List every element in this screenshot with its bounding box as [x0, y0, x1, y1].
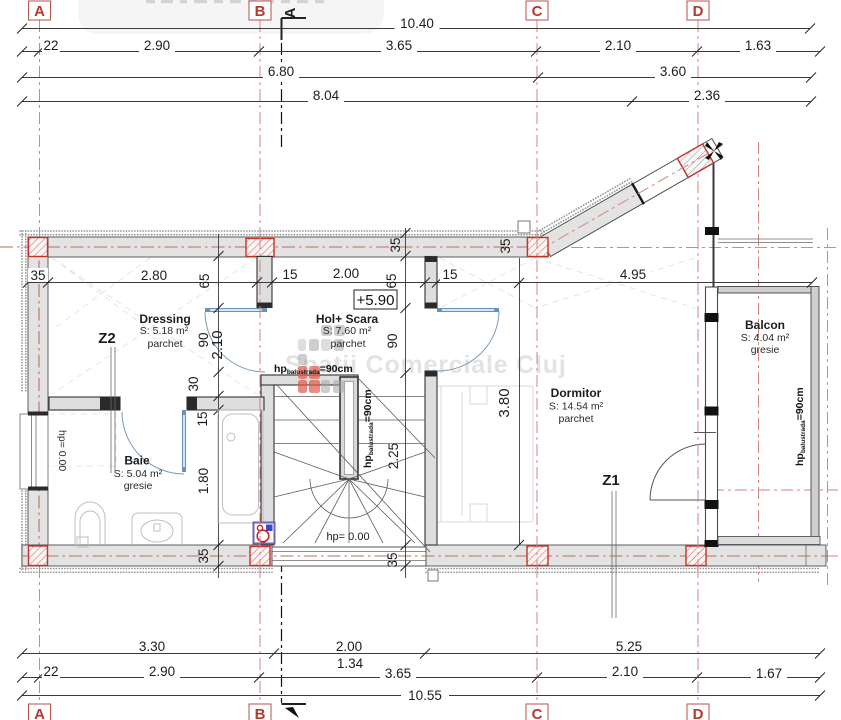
svg-text:hp= 0.00: hp= 0.00 [56, 430, 68, 471]
svg-text:2.00: 2.00 [336, 639, 362, 654]
svg-text:2.10: 2.10 [605, 38, 631, 53]
svg-text:gresie: gresie [751, 344, 780, 356]
svg-text:S: 5.04 m²: S: 5.04 m² [114, 468, 163, 480]
svg-text:Balcon: Balcon [745, 318, 785, 332]
svg-text:Dressing: Dressing [139, 312, 190, 326]
svg-text:3.65: 3.65 [385, 666, 411, 681]
svg-text:A: A [34, 706, 45, 720]
svg-text:90: 90 [385, 333, 400, 348]
svg-text:S: 14.54 m²: S: 14.54 m² [549, 401, 604, 413]
svg-text:1.34: 1.34 [337, 656, 364, 671]
svg-text:parchet: parchet [330, 338, 365, 350]
svg-text:2.00: 2.00 [333, 266, 359, 281]
svg-text:parchet: parchet [147, 338, 182, 350]
svg-text:C: C [532, 706, 543, 720]
svg-text:gresie: gresie [124, 480, 153, 492]
svg-text:35: 35 [196, 548, 211, 563]
svg-text:A: A [282, 7, 299, 18]
svg-text:5.25: 5.25 [616, 639, 642, 654]
svg-text:6.80: 6.80 [268, 64, 294, 79]
svg-text:3.30: 3.30 [139, 639, 165, 654]
svg-text:Baie: Baie [124, 454, 150, 468]
svg-text:S: 4.04 m²: S: 4.04 m² [741, 332, 790, 344]
svg-text:C: C [532, 3, 543, 20]
svg-text:S: 5.18 m²: S: 5.18 m² [140, 325, 189, 337]
svg-text:D: D [693, 3, 704, 20]
svg-text:65: 65 [384, 273, 399, 288]
svg-text:parchet: parchet [558, 413, 593, 425]
svg-text:2.90: 2.90 [144, 38, 170, 53]
svg-text:30: 30 [186, 376, 201, 391]
svg-text:22: 22 [43, 38, 58, 53]
svg-text:2.80: 2.80 [141, 268, 167, 283]
svg-text:15: 15 [442, 267, 457, 282]
svg-text:2.10: 2.10 [209, 330, 226, 359]
svg-text:Hol+ Scara: Hol+ Scara [316, 312, 379, 326]
svg-text:Z1: Z1 [602, 472, 620, 489]
svg-text:1.80: 1.80 [196, 468, 211, 494]
svg-text:Z2: Z2 [98, 330, 116, 347]
svg-text:2.10: 2.10 [612, 664, 638, 679]
svg-text:2.36: 2.36 [694, 88, 720, 103]
svg-text:3.80: 3.80 [496, 388, 513, 417]
svg-text:+5.90: +5.90 [357, 292, 395, 309]
svg-text:65: 65 [197, 273, 212, 288]
svg-text:A: A [34, 3, 45, 20]
svg-text:3.60: 3.60 [660, 64, 686, 79]
svg-text:S: 7.60 m²: S: 7.60 m² [323, 325, 372, 337]
svg-text:3.65: 3.65 [386, 38, 412, 53]
svg-text:35: 35 [388, 237, 403, 252]
svg-text:35: 35 [30, 268, 45, 283]
svg-text:B: B [255, 3, 266, 20]
svg-text:hp= 0.00: hp= 0.00 [326, 531, 369, 543]
svg-text:10.55: 10.55 [408, 688, 442, 703]
svg-text:35: 35 [498, 238, 513, 253]
svg-text:1.67: 1.67 [756, 666, 782, 681]
svg-text:2.25: 2.25 [386, 443, 401, 469]
svg-text:2.90: 2.90 [149, 664, 175, 679]
svg-text:1.63: 1.63 [745, 38, 771, 53]
svg-text:8.04: 8.04 [313, 88, 340, 103]
svg-text:10.40: 10.40 [400, 16, 434, 31]
svg-text:35: 35 [385, 552, 400, 567]
svg-text:22: 22 [43, 664, 58, 679]
svg-text:4.95: 4.95 [620, 267, 646, 282]
svg-text:15: 15 [195, 411, 210, 426]
svg-text:Dormitor: Dormitor [551, 386, 602, 400]
svg-text:B: B [255, 706, 266, 720]
svg-text:15: 15 [282, 267, 297, 282]
svg-text:D: D [693, 706, 704, 720]
